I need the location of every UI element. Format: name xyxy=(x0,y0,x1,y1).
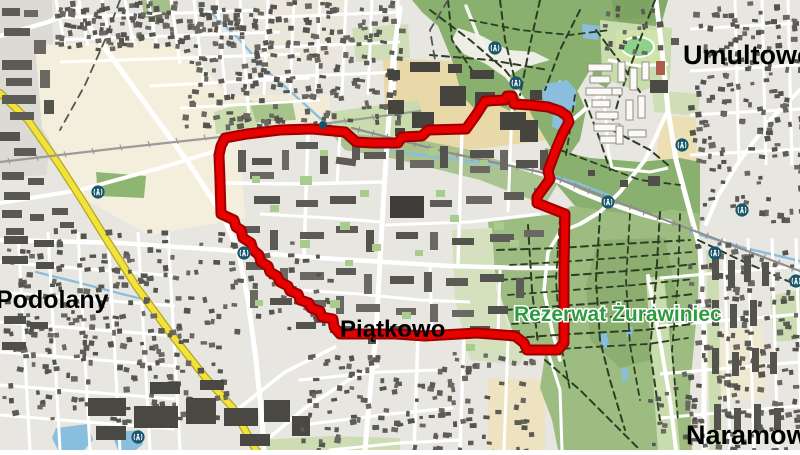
svg-text:Piątkowo: Piątkowo xyxy=(340,316,445,343)
svg-text:Rezerwat Żurawiniec: Rezerwat Żurawiniec xyxy=(514,303,722,326)
svg-text:Naramowic: Naramowic xyxy=(686,420,800,450)
svg-text:Podolany: Podolany xyxy=(0,286,109,314)
svg-text:Umultowo: Umultowo xyxy=(683,40,800,70)
